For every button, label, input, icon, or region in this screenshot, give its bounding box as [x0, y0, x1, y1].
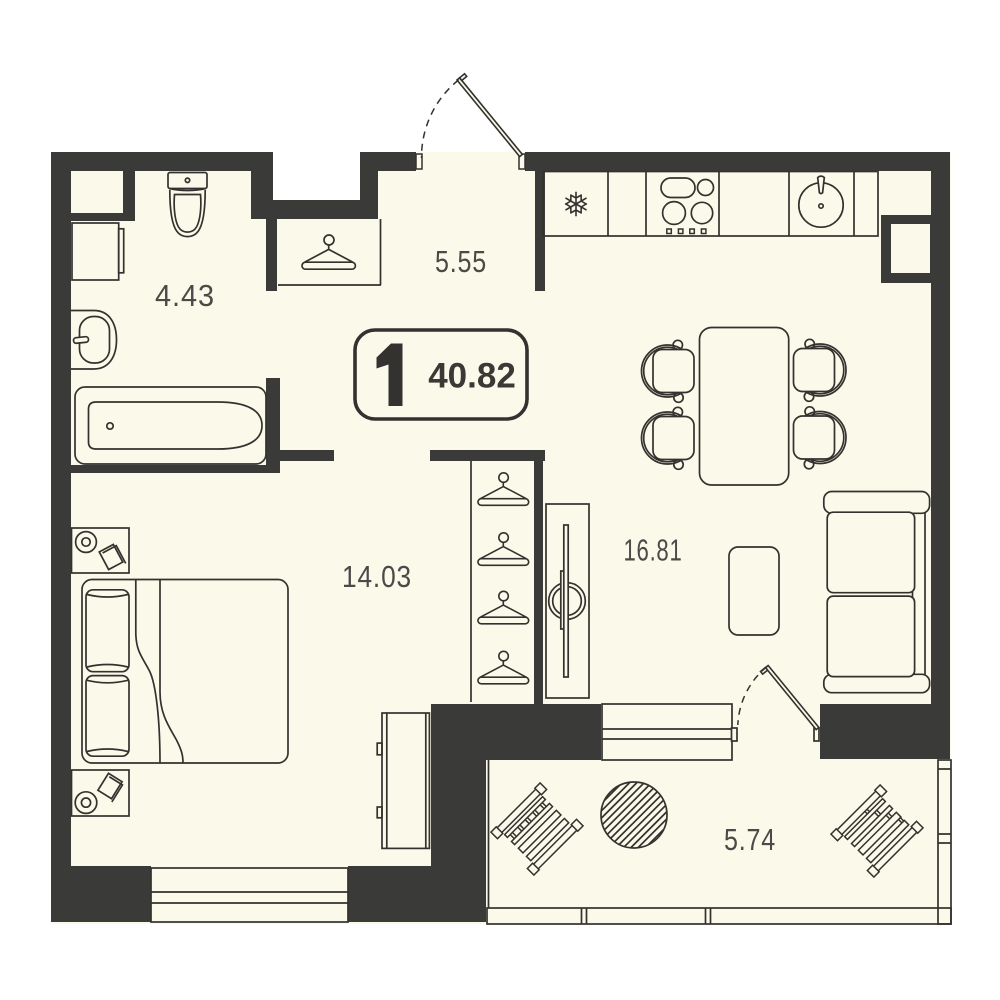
svg-text:5.74: 5.74 — [724, 822, 776, 857]
svg-text:14.03: 14.03 — [342, 559, 412, 594]
svg-text:40.82: 40.82 — [428, 357, 516, 396]
svg-text:4.43: 4.43 — [155, 278, 215, 313]
svg-text:16.81: 16.81 — [624, 533, 683, 568]
svg-text:5.55: 5.55 — [435, 244, 487, 279]
